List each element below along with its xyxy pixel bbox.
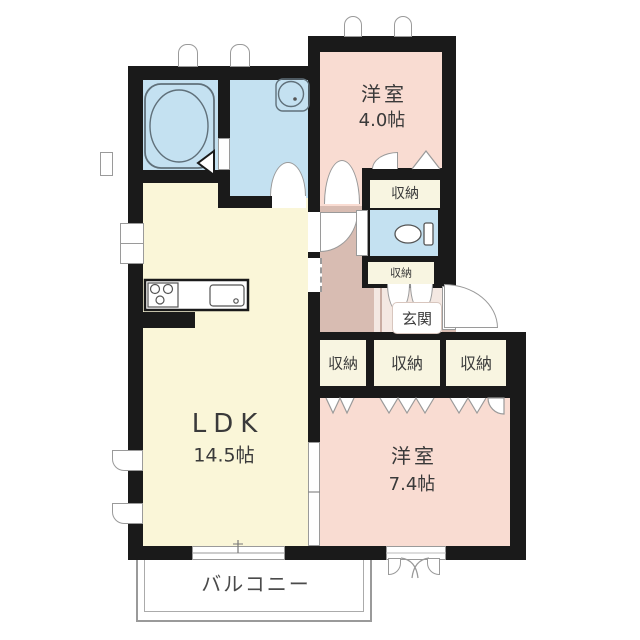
fixtures-overlay <box>0 0 640 640</box>
closet-row2-bifold-icon <box>380 398 434 413</box>
kitchen-sink <box>210 285 244 306</box>
bedroom-bottom-area-label: 7.4帖 <box>389 476 436 494</box>
washbasin-drain-icon <box>293 97 297 101</box>
bedroom-bottom-name-label: 洋室 <box>391 446 437 466</box>
entrance-label: 玄関 <box>392 302 442 334</box>
closet-top-label: 収納 <box>391 187 419 201</box>
closet-hall-label: 収納 <box>390 268 412 279</box>
toilet-tank <box>424 223 433 245</box>
window-swing-arc-right <box>412 558 429 578</box>
bathtub-inner <box>150 90 208 162</box>
closet-row3-door-arc-icon <box>488 398 504 414</box>
toilet-bowl <box>395 225 421 243</box>
floor-plan: 洋室 4.0帖 収納 収納 玄関 LDK 14.5帖 収納 収納 収納 洋室 7… <box>0 0 640 640</box>
bedroom-top-area-label: 4.0帖 <box>359 112 406 130</box>
closet-row3-bifold-icon <box>450 398 486 413</box>
closet-top-bifold-icon <box>412 151 440 169</box>
closet-row1-bifold-icon <box>326 398 354 413</box>
washbasin <box>279 82 304 107</box>
window-swing-arc-left <box>401 558 418 578</box>
bedroom-top-name-label: 洋室 <box>361 84 407 104</box>
bathtub <box>145 84 214 168</box>
closet-row3-label: 収納 <box>460 356 492 372</box>
closet-row2-label: 収納 <box>391 356 423 372</box>
closet-row1-label: 収納 <box>328 357 358 372</box>
balcony-label: バルコニー <box>201 574 311 594</box>
ldk-area-label: 14.5帖 <box>193 447 254 466</box>
ldk-name-label: LDK <box>192 411 265 437</box>
bath-door-swing-icon <box>198 151 214 175</box>
